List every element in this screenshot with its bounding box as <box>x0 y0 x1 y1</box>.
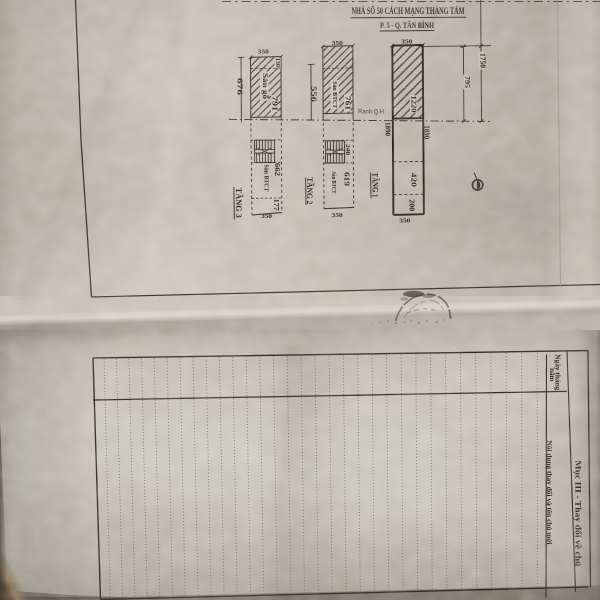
svg-text:TẦNG 1: TẦNG 1 <box>371 173 381 198</box>
svg-text:Mục III - Thay đổi về chủ: Mục III - Thay đổi về chủ <box>574 461 583 567</box>
svg-text:TẦNG 3: TẦNG 3 <box>234 188 244 218</box>
svg-text:P. 5 - Q. TÂN BÌNH: P. 5 - Q. TÂN BÌNH <box>380 20 434 30</box>
svg-text:Nội dung thay đổi và tên chủ m: Nội dung thay đổi và tên chủ mới <box>545 441 554 545</box>
svg-text:1890: 1890 <box>422 125 429 140</box>
svg-text:350: 350 <box>332 212 343 219</box>
svg-text:676: 676 <box>235 78 243 96</box>
svg-text:350: 350 <box>401 39 412 46</box>
svg-text:350: 350 <box>332 40 343 47</box>
svg-text:662: 662 <box>273 163 281 177</box>
svg-text:619: 619 <box>342 172 350 187</box>
svg-text:130: 130 <box>274 58 281 67</box>
svg-text:350: 350 <box>261 213 272 220</box>
svg-text:420: 420 <box>409 173 417 188</box>
svg-text:Sàn BTCT: Sàn BTCT <box>331 81 338 109</box>
svg-text:năm: năm <box>548 368 555 381</box>
svg-text:1890: 1890 <box>384 122 391 137</box>
svg-text:200: 200 <box>408 199 416 212</box>
svg-text:795: 795 <box>463 76 471 89</box>
svg-text:Sàn BTCT: Sàn BTCT <box>262 165 269 193</box>
svg-text:Sàn gỗ: Sàn gỗ <box>261 73 268 100</box>
svg-text:1220: 1220 <box>410 96 418 113</box>
svg-text:177: 177 <box>272 199 280 212</box>
svg-text:1750: 1750 <box>479 53 487 69</box>
svg-text:240: 240 <box>344 144 351 156</box>
svg-text:350: 350 <box>258 49 269 56</box>
svg-text:791: 791 <box>270 96 278 112</box>
svg-text:Sàn BTCT: Sàn BTCT <box>330 172 337 195</box>
svg-text:761: 761 <box>343 96 351 111</box>
svg-text:350: 350 <box>399 217 410 224</box>
svg-text:TẦNG 2: TẦNG 2 <box>305 177 315 204</box>
svg-text:556: 556 <box>310 86 318 103</box>
svg-text:NHÀ SỐ 50 CÁCH MẠNG THÁNG TÁM: NHÀ SỐ 50 CÁCH MẠNG THÁNG TÁM <box>352 4 465 17</box>
svg-text:Ranh Q.H: Ranh Q.H <box>358 109 384 116</box>
